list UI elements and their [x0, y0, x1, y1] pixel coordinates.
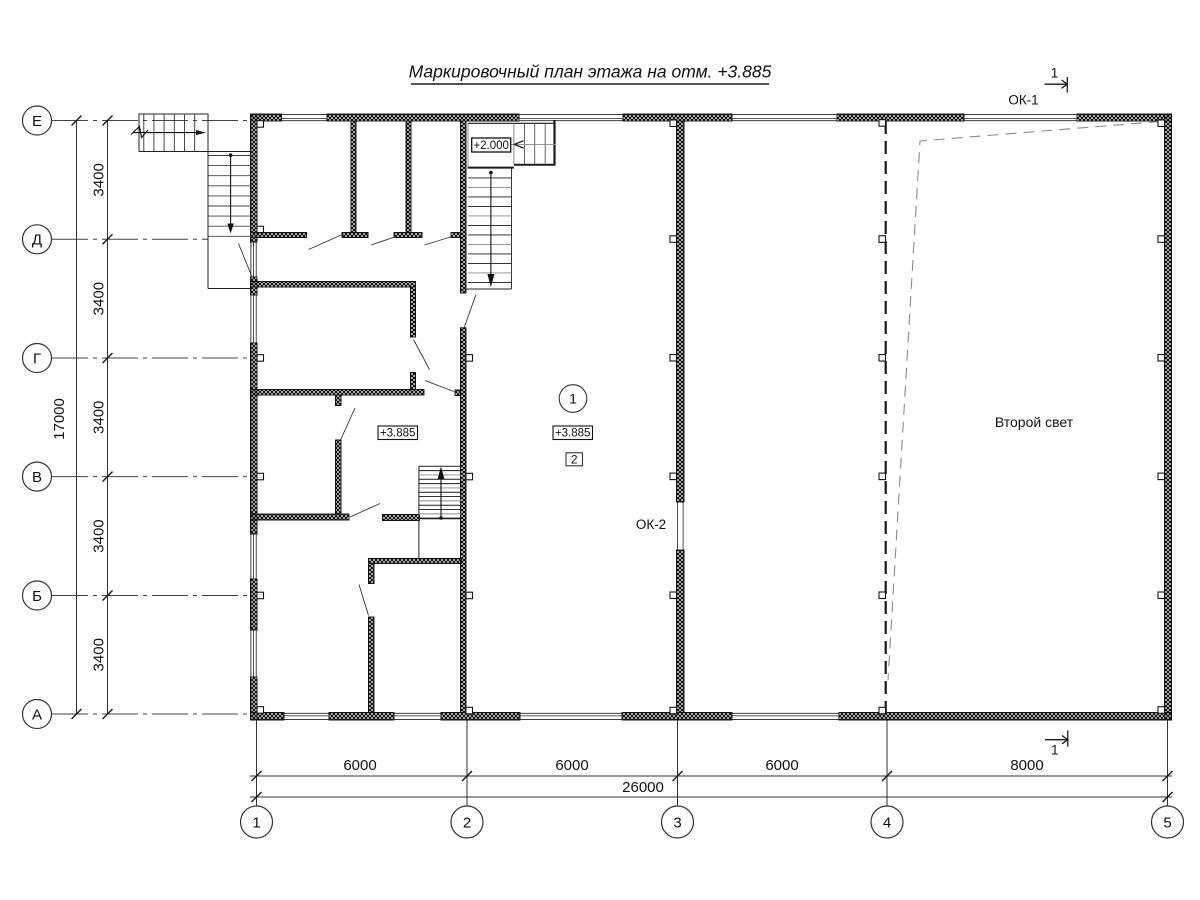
svg-text:Второй свет: Второй свет: [995, 414, 1074, 430]
svg-text:3: 3: [673, 815, 681, 832]
svg-text:+3.885: +3.885: [380, 428, 416, 440]
svg-text:+2.000: +2.000: [473, 140, 509, 152]
svg-text:3400: 3400: [91, 638, 108, 671]
svg-text:2: 2: [463, 815, 471, 832]
svg-text:Г: Г: [33, 350, 41, 367]
svg-text:17000: 17000: [51, 398, 68, 440]
svg-text:3400: 3400: [91, 519, 108, 552]
svg-text:В: В: [32, 469, 42, 486]
svg-text:Д: Д: [32, 232, 42, 249]
svg-text:1: 1: [252, 815, 260, 832]
svg-text:ОК-1: ОК-1: [1008, 93, 1038, 108]
svg-text:ОК-2: ОК-2: [636, 517, 666, 532]
svg-text:1: 1: [1051, 66, 1059, 81]
svg-text:1: 1: [1051, 742, 1059, 757]
svg-text:А: А: [32, 706, 42, 723]
svg-text:26000: 26000: [622, 779, 664, 796]
svg-text:1: 1: [569, 391, 577, 407]
svg-text:Б: Б: [32, 588, 42, 605]
svg-text:4: 4: [883, 815, 891, 832]
svg-text:2: 2: [571, 452, 578, 466]
svg-text:Е: Е: [32, 113, 42, 130]
svg-text:8000: 8000: [1010, 757, 1043, 774]
svg-text:3400: 3400: [91, 163, 108, 196]
svg-text:6000: 6000: [765, 757, 798, 774]
svg-text:5: 5: [1163, 815, 1171, 832]
svg-text:+3.885: +3.885: [555, 428, 591, 440]
svg-text:6000: 6000: [343, 757, 376, 774]
svg-text:6000: 6000: [555, 757, 588, 774]
svg-text:3400: 3400: [91, 401, 108, 434]
svg-text:Маркировочный план этажа на от: Маркировочный план этажа на отм. +3.885: [409, 62, 772, 82]
svg-text:3400: 3400: [91, 282, 108, 315]
